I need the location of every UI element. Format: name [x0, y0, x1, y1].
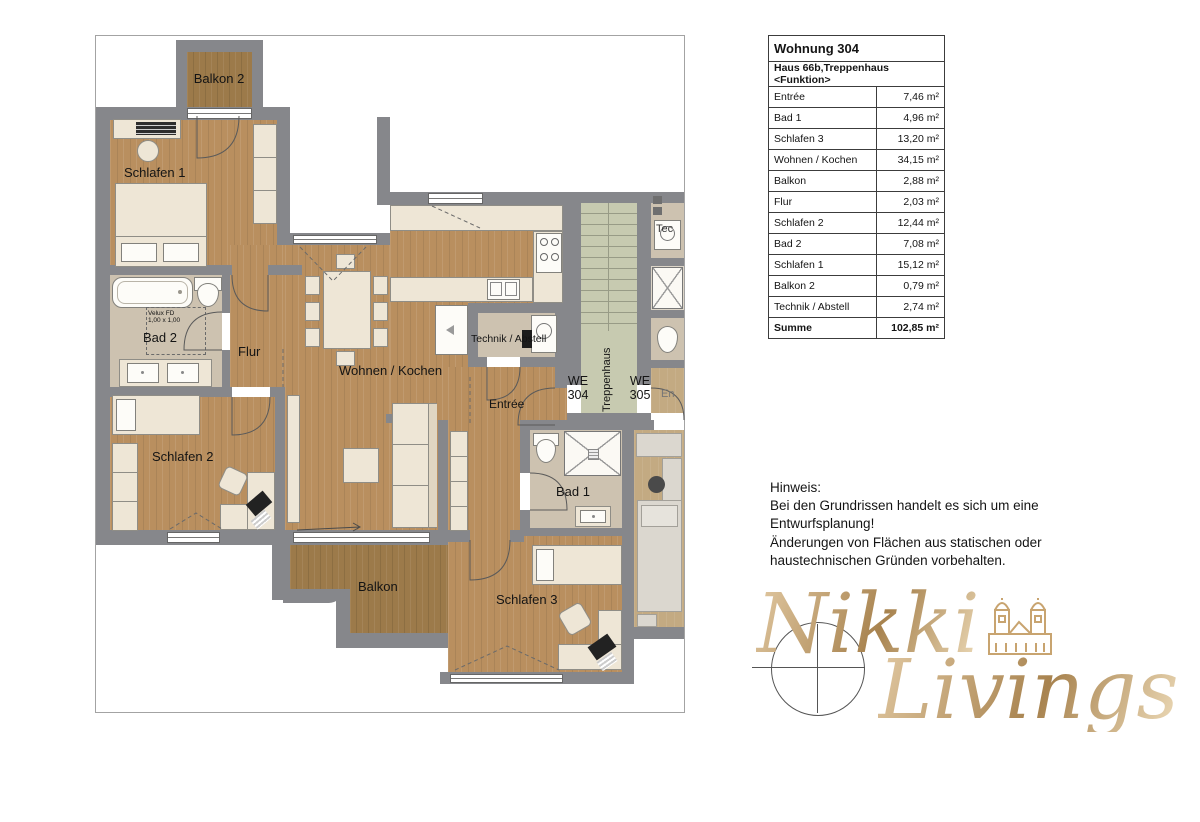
window-schlafen3 [450, 674, 563, 683]
dining-table [323, 271, 371, 349]
wall [275, 397, 285, 530]
room-name: Schlafen 1 [769, 255, 877, 276]
room-name: Wohnen / Kochen [769, 150, 877, 171]
wall [268, 265, 302, 275]
wardrobe-divider [450, 506, 468, 507]
room-label-schlafen2: Schlafen 2 [152, 449, 213, 464]
room-area: 2,03 m² [876, 192, 944, 213]
room-name: Flur [769, 192, 877, 213]
chair [336, 254, 355, 269]
wall [270, 387, 285, 397]
wall [651, 360, 684, 368]
total-area: 102,85 m² [876, 318, 944, 339]
room-name: Bad 1 [769, 108, 877, 129]
pillow-neighbor [641, 505, 678, 527]
kitchen-counter [390, 205, 563, 231]
wall [567, 192, 651, 203]
wardrobe-divider [112, 501, 138, 502]
room-name: Schlafen 2 [769, 213, 877, 234]
stool [137, 140, 159, 162]
chair [305, 302, 320, 321]
wall [277, 120, 290, 245]
table-row: Flur2,03 m² [769, 192, 945, 213]
pillow [536, 549, 554, 581]
burner [551, 253, 559, 261]
room-label-treppenhaus: Treppenhaus [601, 348, 613, 412]
sideboard-neighbor [637, 614, 657, 627]
coffee-table [343, 448, 379, 483]
fridge-door-mark [446, 325, 454, 335]
room-label-flur: Flur [238, 344, 260, 359]
wardrobe-divider [112, 472, 138, 473]
wall [622, 420, 634, 680]
apartment-title: Wohnung 304 [769, 36, 945, 62]
wall [468, 303, 567, 313]
room-area: 0,79 m² [876, 276, 944, 297]
wall [520, 357, 567, 367]
window-balkon2-door [187, 108, 252, 119]
neighbor-label-entree: En [661, 388, 674, 400]
room-label-bad1: Bad 1 [556, 484, 590, 499]
area-table: Wohnung 304 Haus 66b,Treppenhaus <Funkti… [768, 35, 945, 339]
room-area: 4,96 m² [876, 108, 944, 129]
wall [637, 192, 651, 385]
stair-treads [581, 203, 637, 331]
wardrobe-schlafen2 [112, 443, 138, 531]
church-icon [986, 598, 1056, 658]
office-chair [648, 476, 665, 493]
room-label-technik: Technik / Abstell [471, 333, 546, 345]
wardrobe-divider [253, 190, 277, 191]
wall [438, 420, 448, 532]
room-name: Balkon 2 [769, 276, 877, 297]
room-area: 2,74 m² [876, 297, 944, 318]
floor-balkon-b [350, 589, 448, 633]
burner [540, 253, 548, 261]
window-schlafen2 [167, 532, 220, 543]
table-total-row: Summe102,85 m² [769, 318, 945, 339]
table-row: Schlafen 115,12 m² [769, 255, 945, 276]
table-row: Bad 14,96 m² [769, 108, 945, 129]
floorplan-page: Balkon 2 Schlafen 1 Bad 2 Velux FD 1,00 … [0, 0, 1200, 822]
stereo-unit [136, 122, 176, 135]
chair [305, 276, 320, 295]
wall [176, 40, 263, 52]
sink-drain [141, 371, 144, 374]
table-title-row: Wohnung 304 [769, 36, 945, 62]
room-label-schlafen1: Schlafen 1 [124, 165, 185, 180]
room-name: Balkon [769, 171, 877, 192]
sofa-cushion-line [393, 444, 428, 445]
neighbor-label-tech: Tec [656, 223, 673, 235]
room-label-wohnen: Wohnen / Kochen [339, 363, 442, 378]
pillow [121, 243, 157, 262]
desk [220, 504, 248, 530]
wall [222, 350, 230, 392]
note-line: Hinweis: [770, 479, 1070, 497]
wall [651, 258, 684, 266]
wall [222, 275, 230, 313]
table-row: Schlafen 212,44 m² [769, 213, 945, 234]
wall [520, 528, 634, 536]
room-area: 2,88 m² [876, 171, 944, 192]
note-line: Entwurfsplanung! [770, 515, 1070, 533]
wall [520, 510, 530, 530]
room-label-balkon2: Balkon 2 [183, 71, 255, 86]
chair [373, 302, 388, 321]
shower-drain [588, 449, 599, 460]
wall [377, 117, 390, 205]
burner [540, 238, 548, 246]
bathtub-drain [178, 290, 182, 294]
sink-drain [181, 371, 184, 374]
table-row: Technik / Abstell2,74 m² [769, 297, 945, 318]
pillow [116, 399, 136, 431]
room-area: 7,08 m² [876, 234, 944, 255]
electrical-box [653, 207, 662, 215]
room-area: 12,44 m² [876, 213, 944, 234]
room-name: Entrée [769, 87, 877, 108]
room-label-entree: Entrée [489, 397, 524, 411]
table-row: Bad 27,08 m² [769, 234, 945, 255]
wall [567, 192, 581, 385]
room-label-bad2: Bad 2 [143, 330, 177, 345]
wall [283, 589, 343, 603]
wardrobe-divider [450, 456, 468, 457]
window-recess [293, 235, 377, 244]
room-area: 7,46 m² [876, 87, 944, 108]
wall [651, 310, 684, 318]
sideboard [287, 395, 300, 523]
room-name: Bad 2 [769, 234, 877, 255]
chair [373, 328, 388, 347]
sink-basin [505, 282, 517, 296]
apartment-subtitle: Haus 66b,Treppenhaus <Funktion> [769, 62, 945, 87]
pillow [163, 243, 199, 262]
table-row: Schlafen 313,20 m² [769, 129, 945, 150]
stair-centerline [608, 203, 609, 331]
wall [520, 430, 530, 473]
table-row: Balkon2,88 m² [769, 171, 945, 192]
wardrobe-schlafen1 [253, 124, 277, 224]
note-line: Änderungen von Flächen aus statischen od… [770, 534, 1070, 552]
note-line: haustechnischen Gründen vorbehalten. [770, 552, 1070, 570]
room-name: Technik / Abstell [769, 297, 877, 318]
wardrobe-divider [253, 157, 277, 158]
unit-label-we305: WE 305 [620, 374, 660, 402]
table-row: Entrée7,46 m² [769, 87, 945, 108]
table-subtitle-row: Haus 66b,Treppenhaus <Funktion> [769, 62, 945, 87]
room-label-schlafen3: Schlafen 3 [496, 592, 557, 607]
disclaimer-note: Hinweis: Bei den Grundrissen handelt es … [770, 479, 1070, 570]
bed-fold-line [116, 236, 206, 237]
room-area: 13,20 m² [876, 129, 944, 150]
chair [373, 276, 388, 295]
wardrobe-divider [450, 481, 468, 482]
burner [551, 238, 559, 246]
logo-word-livings: Livings [878, 650, 1179, 732]
room-label-balkon: Balkon [358, 579, 398, 594]
wall [634, 627, 684, 639]
note-line: Bei den Grundrissen handelt es sich um e… [770, 497, 1070, 515]
unit-label-we304: WE 304 [558, 374, 598, 402]
window-kitchen [428, 193, 483, 204]
sofa-back [428, 404, 437, 527]
room-area: 15,12 m² [876, 255, 944, 276]
room-name: Schlafen 3 [769, 129, 877, 150]
table-row: Balkon 20,79 m² [769, 276, 945, 297]
room-area: 34,15 m² [876, 150, 944, 171]
window-balkon-door [293, 532, 430, 543]
wall [96, 107, 110, 543]
total-label: Summe [769, 318, 877, 339]
wall [468, 357, 487, 367]
chair [305, 328, 320, 347]
velux-label: Velux FD 1,00 x 1,00 [148, 310, 180, 325]
sink-drain [592, 515, 595, 518]
sink-basin [490, 282, 502, 296]
wall [440, 530, 470, 542]
shower-neighbor [652, 267, 683, 309]
wardrobe-neighbor [636, 433, 682, 457]
wall [336, 633, 448, 648]
sofa-cushion-line [393, 485, 428, 486]
electrical-box [653, 196, 662, 204]
table-row: Wohnen / Kochen34,15 m² [769, 150, 945, 171]
